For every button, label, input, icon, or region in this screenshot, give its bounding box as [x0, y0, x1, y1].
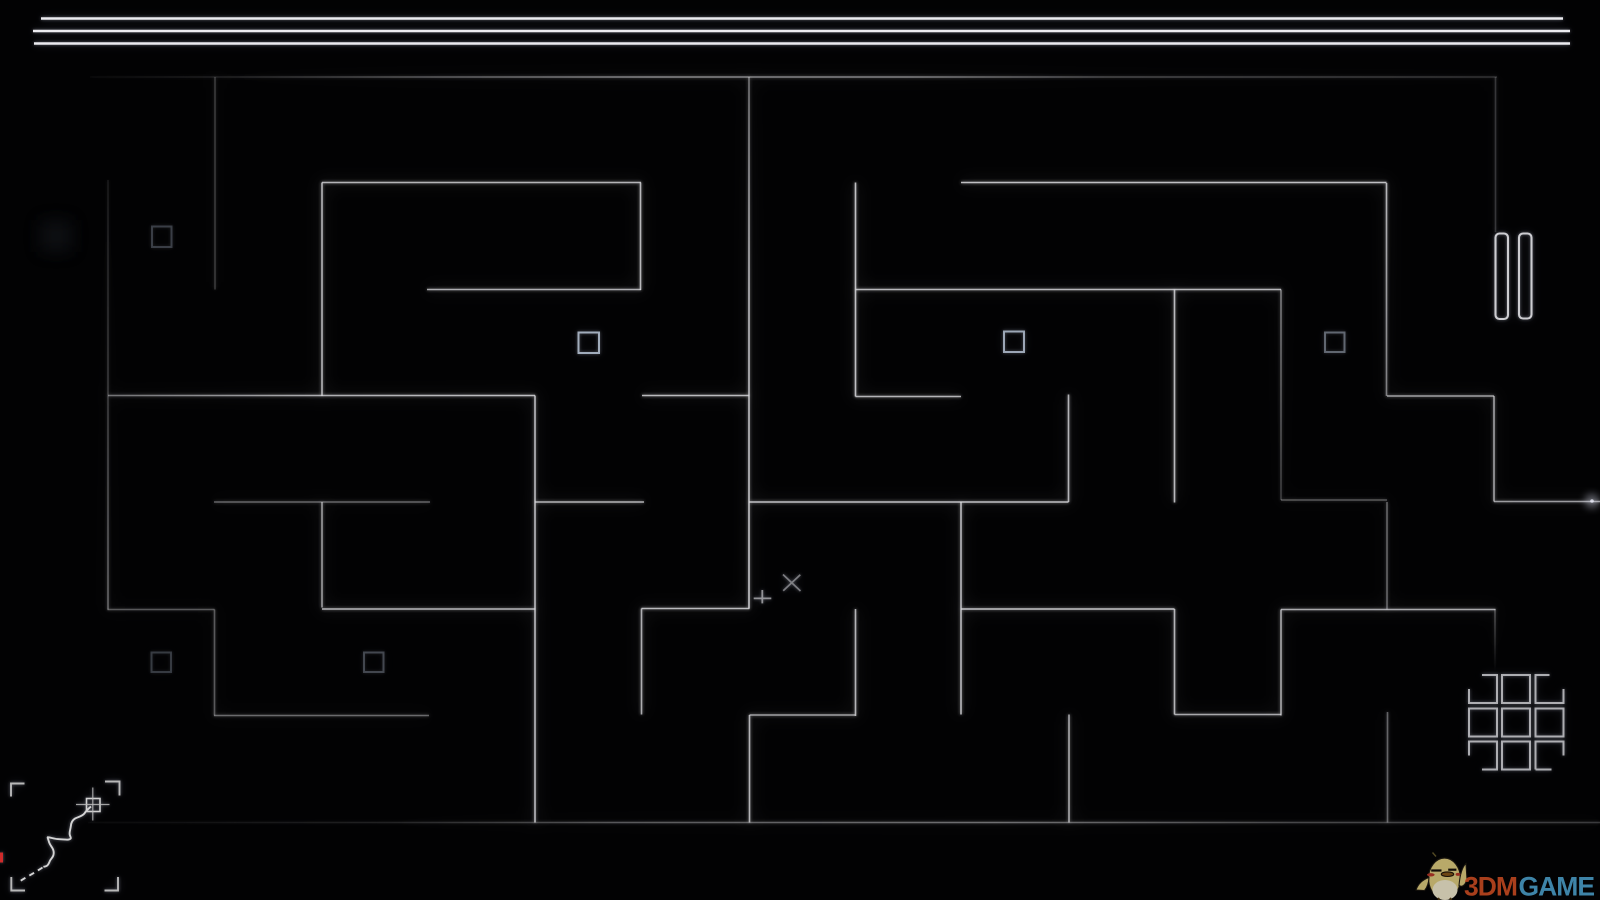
svg-text:3DM: 3DM — [1464, 872, 1517, 900]
svg-text:GAME: GAME — [1519, 872, 1595, 900]
